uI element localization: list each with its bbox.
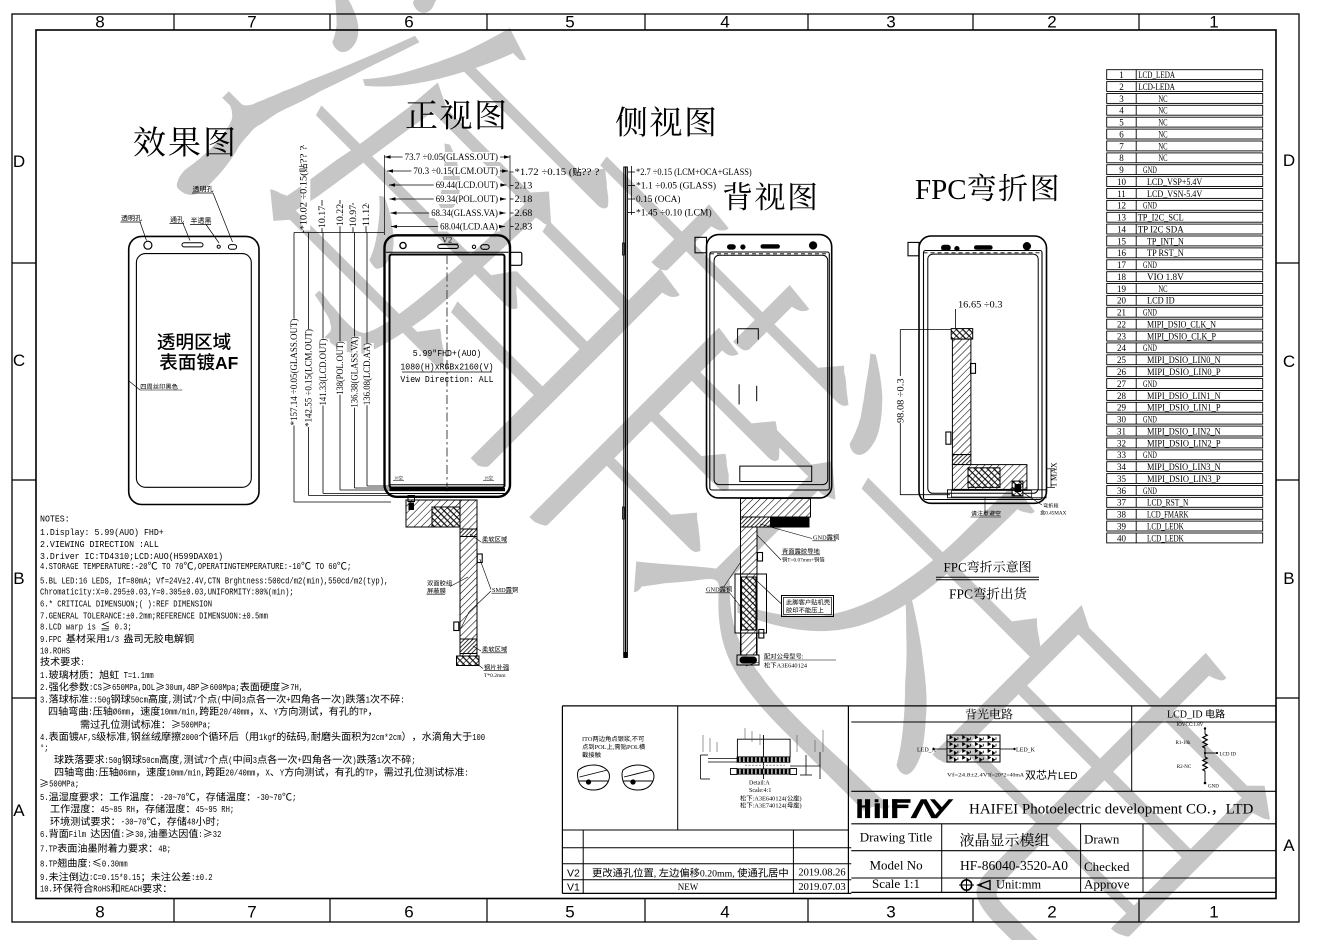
svg-text:*1.1 ÷0.05 (GLASS): *1.1 ÷0.05 (GLASS) — [636, 181, 716, 191]
svg-text:*2.7 ÷0.15 (LCM+OCA+GLASS): *2.7 ÷0.15 (LCM+OCA+GLASS) — [636, 167, 752, 177]
svg-text::: : — [802, 654, 804, 661]
svg-text:50cm: 50cm — [131, 695, 148, 705]
svg-text:;: ; — [347, 562, 351, 572]
svg-text:(: ( — [228, 756, 232, 766]
svg-text:5: 5 — [1119, 118, 1124, 128]
svg-text:6.* CRITICAL DIMENSUON;( ):REF: 6.* CRITICAL DIMENSUON;( ):REF DIMENSION — [40, 599, 212, 609]
svg-text:::50g: ::50g — [89, 695, 111, 705]
svg-text:0.15 (OCA): 0.15 (OCA) — [636, 194, 680, 204]
svg-text:9.: 9. — [40, 873, 49, 883]
svg-text:1: 1 — [377, 756, 381, 766]
svg-text:18: 18 — [484, 476, 489, 481]
svg-text:7.GENERAL TOLERANCE:±0.2mm;REF: 7.GENERAL TOLERANCE:±0.2mm;REFERENCE DIM… — [40, 612, 268, 622]
svg-text:TP: TP — [359, 708, 368, 718]
svg-text:GND: GND — [1143, 415, 1157, 425]
svg-text:10mm/min,: 10mm/min, — [166, 768, 205, 778]
svg-text:NC: NC — [1158, 284, 1167, 294]
svg-text:;: ; — [411, 756, 415, 766]
svg-text:20/40mm: 20/40mm — [225, 768, 255, 778]
svg-text:5: 5 — [565, 13, 574, 32]
svg-text:FPC: FPC — [944, 560, 967, 575]
svg-text:HF-86040-3520-A0: HF-86040-3520-A0 — [960, 858, 1068, 873]
svg-text:19: 19 — [1117, 284, 1127, 294]
svg-text:6: 6 — [404, 13, 413, 32]
svg-text:18: 18 — [394, 476, 399, 481]
svg-text:3: 3 — [886, 903, 895, 922]
svg-text:98.08 ÷0.3: 98.08 ÷0.3 — [896, 378, 906, 423]
svg-text:27: 27 — [1117, 379, 1127, 389]
svg-text:°;: °; — [40, 743, 49, 753]
svg-text:45~95 RH;: 45~95 RH; — [196, 805, 235, 815]
svg-text:3: 3 — [1119, 94, 1124, 104]
svg-text:,OPERATINGTEMPERATURE:-10: ,OPERATINGTEMPERATURE:-10 — [193, 562, 301, 572]
svg-text::: : — [87, 859, 91, 869]
svg-text:B: B — [13, 569, 24, 588]
svg-text:15: 15 — [1117, 236, 1127, 246]
svg-text:NC: NC — [1158, 94, 1167, 104]
svg-text:3.Driver IC:TD4310;LCD:AUO(H59: 3.Driver IC:TD4310;LCD:AUO(H599DAX01) — [40, 551, 223, 562]
svg-text:GND: GND — [813, 535, 827, 542]
svg-text:LCD_FMARK: LCD_FMARK — [1147, 510, 1189, 520]
svg-text:32: 32 — [1117, 438, 1126, 448]
svg-text:Ø6mm: Ø6mm — [113, 708, 130, 718]
svg-text:1: 1 — [1209, 903, 1218, 922]
svg-text:2.13: 2.13 — [515, 181, 533, 191]
svg-text:3: 3 — [253, 756, 257, 766]
svg-text:2.18: 2.18 — [515, 194, 533, 204]
svg-text:30,: 30, — [135, 830, 148, 840]
svg-text:MIPI_DSIO_LIN0_P: MIPI_DSIO_LIN0_P — [1147, 367, 1221, 377]
svg-text:2.: 2. — [40, 683, 49, 693]
svg-text:4: 4 — [720, 903, 729, 922]
svg-text:LED_K: LED_K — [1016, 748, 1036, 754]
svg-text:LCD ID: LCD ID — [1147, 296, 1175, 306]
svg-text:REACH: REACH — [121, 885, 143, 895]
svg-text:3: 3 — [886, 13, 895, 32]
svg-text:600Mpa;: 600Mpa; — [210, 683, 240, 693]
svg-text:69.44(LCD.OUT): 69.44(LCD.OUT) — [436, 180, 498, 190]
svg-text:6: 6 — [1119, 129, 1124, 139]
svg-text:32: 32 — [213, 830, 222, 840]
svg-text:5.: 5. — [40, 793, 49, 803]
svg-text:Film: Film — [69, 830, 91, 840]
svg-text:50cm: 50cm — [142, 756, 159, 766]
svg-text:30: 30 — [1117, 415, 1127, 425]
svg-text:GND: GND — [1143, 165, 1157, 175]
svg-text:T*0.2mm: T*0.2mm — [484, 673, 506, 679]
svg-text:8: 8 — [95, 13, 104, 32]
svg-text:2.VIEWING DIRECTION :ALL: 2.VIEWING DIRECTION :ALL — [40, 539, 159, 550]
svg-text:40: 40 — [1117, 533, 1127, 543]
svg-text:AF: AF — [215, 353, 239, 373]
svg-text:1: 1 — [366, 695, 370, 705]
svg-text:1080(H)xRGBx2160(V): 1080(H)xRGBx2160(V) — [400, 362, 493, 373]
svg-text:4: 4 — [720, 13, 729, 32]
svg-text:8: 8 — [95, 903, 104, 922]
svg-text:2019.08.26: 2019.08.26 — [798, 868, 845, 879]
svg-text:34: 34 — [1117, 462, 1127, 472]
svg-text:If=20*2=40mA: If=20*2=40mA — [988, 772, 1024, 779]
svg-text:MIPI_DSIO_LIN2_P: MIPI_DSIO_LIN2_P — [1147, 438, 1221, 448]
svg-text:;: ; — [216, 818, 220, 828]
svg-text:Drawn: Drawn — [1084, 832, 1120, 847]
svg-text:GND: GND — [1143, 201, 1157, 211]
svg-text:650MPa,DOL: 650MPa,DOL — [112, 683, 155, 693]
svg-text:LED: LED — [1058, 771, 1077, 782]
svg-text:*10.02 ÷0.15(: *10.02 ÷0.15( — [299, 172, 309, 230]
svg-text:LCD-LEDA: LCD-LEDA — [1138, 82, 1175, 92]
svg-text:Checked: Checked — [1084, 859, 1130, 874]
svg-text:Scale:4:1: Scale:4:1 — [749, 788, 771, 794]
svg-text:500MPa;: 500MPa; — [181, 721, 211, 731]
svg-text:R1-10k: R1-10k — [1176, 741, 1192, 746]
svg-text:10.17: 10.17 — [317, 205, 327, 228]
svg-text:Vf=24.8±2.4V: Vf=24.8±2.4V — [947, 772, 988, 779]
svg-text:): ) — [799, 803, 801, 810]
svg-text:136.08(LCD.AA): 136.08(LCD.AA) — [362, 343, 372, 405]
svg-text:22: 22 — [1117, 320, 1126, 330]
svg-text:TO 60: TO 60 — [311, 562, 337, 572]
svg-text:NEW: NEW — [678, 882, 699, 892]
svg-text:45~85 RH: 45~85 RH — [101, 805, 135, 815]
svg-text:FPC: FPC — [915, 174, 967, 206]
svg-text:6.: 6. — [40, 830, 49, 840]
svg-text:0.45MAX: 0.45MAX — [1045, 511, 1066, 517]
svg-text:LCD_LEDA: LCD_LEDA — [1138, 70, 1175, 80]
svg-text:Detail:A: Detail:A — [749, 781, 770, 787]
svg-text:POL: POL — [627, 744, 639, 751]
svg-text:VIO 1.8V: VIO 1.8V — [1147, 272, 1184, 282]
svg-text:TO 70: TO 70 — [158, 562, 184, 572]
svg-text::C=0.15*0.15: :C=0.15*0.15 — [89, 873, 141, 883]
svg-text:,: , — [654, 869, 659, 880]
svg-text:GND: GND — [1143, 450, 1157, 460]
svg-text:,: , — [126, 733, 130, 743]
svg-text:25: 25 — [1117, 355, 1127, 365]
svg-text:-30~70: -30~70 — [121, 818, 147, 828]
svg-text:20: 20 — [1117, 296, 1127, 306]
svg-text:LCD ID: LCD ID — [1220, 753, 1237, 758]
svg-text:3: 3 — [242, 695, 246, 705]
svg-text:Scale 1:1: Scale 1:1 — [872, 876, 920, 891]
svg-text:,: , — [179, 756, 183, 766]
svg-text:5.BL LED:16 LEDS, If=80mA; Vf=: 5.BL LED:16 LEDS, If=80mA; Vf=24V±2.4V,C… — [40, 577, 388, 587]
svg-text:13: 13 — [1117, 213, 1127, 223]
svg-text:12: 12 — [1117, 201, 1126, 211]
svg-text:20/40mm: 20/40mm — [219, 708, 249, 718]
svg-text:138(POL.OUT): 138(POL.OUT) — [335, 341, 345, 394]
svg-text:68.04(LCD.AA): 68.04(LCD.AA) — [440, 222, 498, 232]
svg-text:D: D — [1283, 151, 1295, 170]
svg-text:1kgf: 1kgf — [259, 733, 276, 743]
svg-text:9: 9 — [1119, 165, 1124, 175]
svg-text:TP: TP — [365, 768, 374, 778]
svg-text:LCD_ID: LCD_ID — [1167, 710, 1205, 721]
svg-text::±0.2: :±0.2 — [191, 873, 213, 883]
svg-text:16: 16 — [1117, 248, 1127, 258]
svg-text:,: , — [168, 695, 172, 705]
svg-text:31: 31 — [1117, 426, 1126, 436]
svg-text:70.3 ÷0.15(LCM.OUT): 70.3 ÷0.15(LCM.OUT) — [413, 166, 498, 176]
svg-text:AF,S: AF,S — [79, 733, 96, 743]
svg-text:+: + — [286, 695, 290, 705]
svg-text:100: 100 — [472, 733, 485, 743]
svg-text:18: 18 — [1117, 272, 1127, 282]
svg-text:73.7 ÷0.05(GLASS.OUT): 73.7 ÷0.05(GLASS.OUT) — [405, 152, 498, 162]
svg-text:MIPI_DSIO_LIN3_P: MIPI_DSIO_LIN3_P — [1147, 474, 1221, 484]
svg-text:A: A — [13, 801, 25, 820]
svg-text:X: X — [259, 708, 264, 718]
svg-text:NOTES:: NOTES: — [40, 514, 70, 525]
svg-text:Y: Y — [280, 768, 285, 778]
svg-text:17: 17 — [1117, 260, 1127, 270]
svg-text:?? ?: ?? ? — [582, 167, 600, 177]
svg-text::50g: :50g — [105, 756, 122, 766]
svg-text:C: C — [13, 351, 25, 370]
svg-text:29: 29 — [1117, 403, 1127, 413]
svg-text:36: 36 — [1117, 486, 1127, 496]
svg-text:R2-NC: R2-NC — [1177, 765, 1192, 770]
svg-text:GND: GND — [1143, 343, 1157, 353]
svg-text:C: C — [1283, 352, 1295, 371]
svg-text:): ) — [341, 695, 345, 705]
svg-text::CS: :CS — [89, 683, 102, 693]
svg-text:1.Display: 5.99(AUO) FHD+: 1.Display: 5.99(AUO) FHD+ — [40, 527, 164, 538]
svg-text:POL: POL — [595, 744, 607, 751]
svg-text:0.20mm,: 0.20mm, — [700, 869, 737, 880]
svg-text:TP_I2C_SCL: TP_I2C_SCL — [1138, 213, 1184, 223]
svg-text:GND: GND — [1208, 785, 1219, 790]
svg-text:37: 37 — [1117, 498, 1127, 508]
svg-text:9.FPC: 9.FPC — [40, 635, 66, 645]
svg-text:33: 33 — [1117, 450, 1127, 460]
svg-text:*157.14 ÷0.05(GLASS.OUT): *157.14 ÷0.05(GLASS.OUT) — [289, 319, 299, 426]
svg-text::: : — [465, 768, 469, 778]
svg-text:-20~70: -20~70 — [160, 793, 186, 803]
svg-text:V1: V1 — [567, 882, 580, 894]
svg-text:LCD_LEDK: LCD_LEDK — [1147, 521, 1184, 531]
svg-text:RoHS: RoHS — [93, 885, 110, 895]
svg-text:6: 6 — [404, 903, 413, 922]
svg-text:MIPI_DSIO_LIN1_N: MIPI_DSIO_LIN1_N — [1147, 391, 1221, 401]
svg-text:NC: NC — [1158, 153, 1167, 163]
svg-text:TP_INT_N: TP_INT_N — [1147, 236, 1184, 246]
svg-text:10.: 10. — [40, 885, 53, 895]
svg-text:8: 8 — [1119, 153, 1124, 163]
svg-text:NC: NC — [1158, 118, 1167, 128]
svg-text:1: 1 — [1209, 13, 1218, 32]
svg-text::: : — [198, 830, 202, 840]
svg-text:1/3: 1/3 — [106, 635, 123, 645]
svg-text:ITO: ITO — [582, 736, 593, 743]
svg-text:*1.45 ÷0.10 (LCM): *1.45 ÷0.10 (LCM) — [636, 208, 712, 218]
svg-text:28: 28 — [1117, 391, 1127, 401]
svg-text:;: ; — [292, 793, 296, 803]
svg-text:MIPI_DSIO_CLK_N: MIPI_DSIO_CLK_N — [1147, 320, 1216, 330]
svg-text:38: 38 — [1117, 510, 1127, 520]
svg-text:7.TP: 7.TP — [40, 845, 57, 855]
svg-text:5: 5 — [565, 903, 574, 922]
svg-text:8.TP: 8.TP — [40, 859, 57, 869]
svg-text:A3E640124: A3E640124 — [777, 663, 808, 670]
svg-text:69.34(POL.OUT): 69.34(POL.OUT) — [436, 194, 498, 204]
svg-text:3.: 3. — [40, 695, 49, 705]
svg-text:26: 26 — [1117, 367, 1127, 377]
svg-text:GND: GND — [1143, 379, 1157, 389]
svg-text:MIPI_DSIO_LIN0_N: MIPI_DSIO_LIN0_N — [1147, 355, 1221, 365]
svg-text::: : — [94, 768, 98, 778]
svg-text:4: 4 — [1119, 106, 1124, 116]
svg-text:,: , — [306, 733, 310, 743]
svg-text:2.83: 2.83 — [515, 222, 533, 232]
svg-text:7: 7 — [1119, 141, 1124, 151]
svg-text:-30~70: -30~70 — [256, 793, 282, 803]
svg-text:TP RST_N: TP RST_N — [1147, 248, 1184, 258]
svg-text:FPC: FPC — [949, 587, 973, 602]
svg-text:2019.07.03: 2019.07.03 — [798, 882, 845, 893]
svg-text:MIPI_DSIO_LIN2_N: MIPI_DSIO_LIN2_N — [1147, 426, 1221, 436]
svg-text:X: X — [265, 768, 270, 778]
svg-text:7: 7 — [247, 13, 256, 32]
svg-text:141.33(LCD.OUT): 141.33(LCD.OUT) — [318, 339, 328, 406]
svg-text:7: 7 — [193, 695, 197, 705]
svg-text:21: 21 — [1117, 308, 1126, 318]
svg-text:11.12: 11.12 — [361, 204, 371, 226]
svg-text:4.STORAGE TEMPERATURE:-20: 4.STORAGE TEMPERATURE:-20 — [40, 562, 148, 572]
svg-text:NC: NC — [1158, 141, 1167, 151]
svg-text::A3E740124(: :A3E740124( — [753, 803, 787, 810]
svg-text:Ø6mm: Ø6mm — [119, 768, 136, 778]
svg-text:V2: V2 — [442, 235, 452, 245]
svg-text:TP I2C SDA: TP I2C SDA — [1138, 224, 1184, 234]
svg-text:T=1.1mm: T=1.1mm — [119, 671, 153, 681]
svg-text:+: + — [297, 756, 301, 766]
svg-text:1.: 1. — [40, 671, 49, 681]
svg-text:IOVCC:1.8V: IOVCC:1.8V — [1177, 723, 1204, 728]
svg-text:48: 48 — [187, 818, 196, 828]
svg-text:A: A — [1283, 836, 1295, 855]
svg-text:LCD_VSP+5.4V: LCD_VSP+5.4V — [1147, 177, 1203, 187]
svg-text:NC: NC — [1158, 129, 1167, 139]
svg-text:39: 39 — [1117, 521, 1127, 531]
svg-text:MIPI_DSIO_CLK_P: MIPI_DSIO_CLK_P — [1147, 331, 1216, 341]
svg-text:2.68: 2.68 — [515, 208, 533, 218]
svg-text:LCD_LEDK: LCD_LEDK — [1147, 533, 1184, 543]
svg-text:V2: V2 — [567, 868, 580, 880]
svg-text:11: 11 — [1117, 189, 1126, 199]
svg-text:14: 14 — [1117, 224, 1127, 234]
svg-text:7H,: 7H, — [290, 683, 303, 693]
svg-text:10: 10 — [1117, 177, 1127, 187]
svg-text:5.99"FHD+(AUO): 5.99"FHD+(AUO) — [413, 348, 482, 359]
svg-text:MIPI_DSIO_LIN1_P: MIPI_DSIO_LIN1_P — [1147, 403, 1221, 413]
svg-text::A3E640124(: :A3E640124( — [753, 796, 787, 803]
svg-text:2000: 2000 — [181, 733, 198, 743]
svg-text:2: 2 — [1047, 903, 1056, 922]
svg-text:HAIFEI Photoelectric developme: HAIFEI Photoelectric development CO. — [969, 802, 1211, 818]
svg-text:7: 7 — [204, 756, 208, 766]
svg-text:2: 2 — [1119, 82, 1124, 92]
svg-text:?? ?: ?? ? — [299, 146, 309, 164]
svg-text:4.: 4. — [40, 733, 49, 743]
svg-text:MIPI_DSIO_LIN3_N: MIPI_DSIO_LIN3_N — [1147, 462, 1221, 472]
svg-text:View Direction: ALL: View Direction: ALL — [400, 374, 493, 385]
svg-text:68.34(GLASS.VA): 68.34(GLASS.VA) — [431, 208, 498, 218]
svg-text:500MPa;: 500MPa; — [49, 780, 79, 790]
svg-text:Y: Y — [274, 708, 279, 718]
svg-text:B: B — [1283, 569, 1294, 588]
svg-text:2cm*2cm: 2cm*2cm — [371, 733, 401, 743]
svg-text:10mm/min,: 10mm/min, — [160, 708, 199, 718]
svg-text:LTD: LTD — [1226, 802, 1254, 818]
svg-text:GND: GND — [1143, 260, 1157, 270]
svg-text:2: 2 — [1047, 13, 1056, 32]
svg-text:Unit:mm: Unit:mm — [996, 878, 1041, 892]
svg-text:1: 1 — [1119, 70, 1124, 80]
svg-text::: : — [400, 695, 404, 705]
svg-text:Drawing Title: Drawing Title — [860, 830, 933, 845]
svg-text:GND: GND — [1143, 486, 1157, 496]
svg-text:23: 23 — [1117, 331, 1127, 341]
svg-text:0.30mm: 0.30mm — [102, 859, 128, 869]
svg-text:*142.55 ÷0.15(LCM.OUT): *142.55 ÷0.15(LCM.OUT) — [304, 329, 314, 427]
svg-text:(: ( — [217, 695, 221, 705]
svg-text:GND: GND — [1143, 308, 1157, 318]
svg-text::: : — [121, 830, 125, 840]
svg-text:GND: GND — [706, 587, 720, 594]
svg-text:D: D — [13, 152, 25, 171]
svg-text:T=0.07mm+: T=0.07mm+ — [787, 558, 814, 564]
svg-text:0.3;: 0.3; — [110, 623, 132, 633]
svg-text:10.ROHS: 10.ROHS — [40, 646, 70, 656]
svg-text:10.97: 10.97 — [348, 204, 358, 227]
svg-text:Chromaticity:X=0.295±0.03,Y=0.: Chromaticity:X=0.295±0.03,Y=0.305±0.03,U… — [40, 588, 294, 598]
svg-text::: : — [88, 708, 92, 718]
svg-text:35: 35 — [1117, 474, 1127, 484]
svg-text:Model No: Model No — [870, 858, 923, 873]
svg-text:7: 7 — [247, 903, 256, 922]
svg-text:): ) — [799, 796, 801, 803]
svg-text:LCD_RST_N: LCD_RST_N — [1147, 498, 1189, 508]
svg-text:24: 24 — [1117, 343, 1127, 353]
svg-text:16.65 ÷0.3: 16.65 ÷0.3 — [958, 300, 1003, 310]
svg-text:*1.72 ÷0.15 (: *1.72 ÷0.15 ( — [515, 167, 573, 177]
svg-text:10.22: 10.22 — [335, 204, 345, 226]
svg-text:136.38(GLASS.VA): 136.38(GLASS.VA) — [350, 336, 360, 407]
svg-text:4B;: 4B; — [158, 845, 171, 855]
svg-text:30um,4BP: 30um,4BP — [165, 683, 199, 693]
svg-text:8.LCD warp is: 8.LCD warp is — [40, 623, 100, 633]
svg-text:LCD_VSN-5.4V: LCD_VSN-5.4V — [1147, 189, 1203, 199]
svg-text:): ) — [352, 756, 356, 766]
svg-text:Approve: Approve — [1084, 877, 1130, 892]
svg-text:NC: NC — [1158, 106, 1167, 116]
svg-text::: : — [80, 658, 84, 668]
